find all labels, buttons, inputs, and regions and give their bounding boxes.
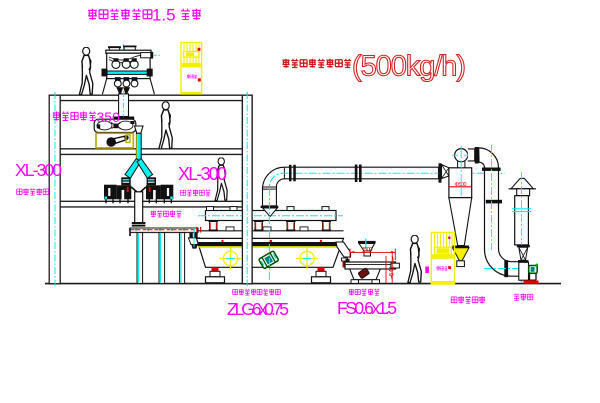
svg-text:1.5: 1.5 [152, 6, 176, 25]
svg-text:350: 350 [97, 109, 121, 125]
svg-text:ZLG6x0.75: ZLG6x0.75 [227, 299, 289, 319]
svg-text:(500kg/h): (500kg/h) [352, 51, 466, 83]
svg-text:FS0.6x1.5: FS0.6x1.5 [337, 298, 397, 318]
svg-text:1500: 1500 [362, 247, 374, 253]
svg-text:Φ500: Φ500 [455, 182, 467, 188]
svg-text:541: 541 [390, 265, 396, 276]
svg-text:XL-300: XL-300 [15, 160, 62, 180]
svg-text:XL-300: XL-300 [178, 164, 227, 184]
